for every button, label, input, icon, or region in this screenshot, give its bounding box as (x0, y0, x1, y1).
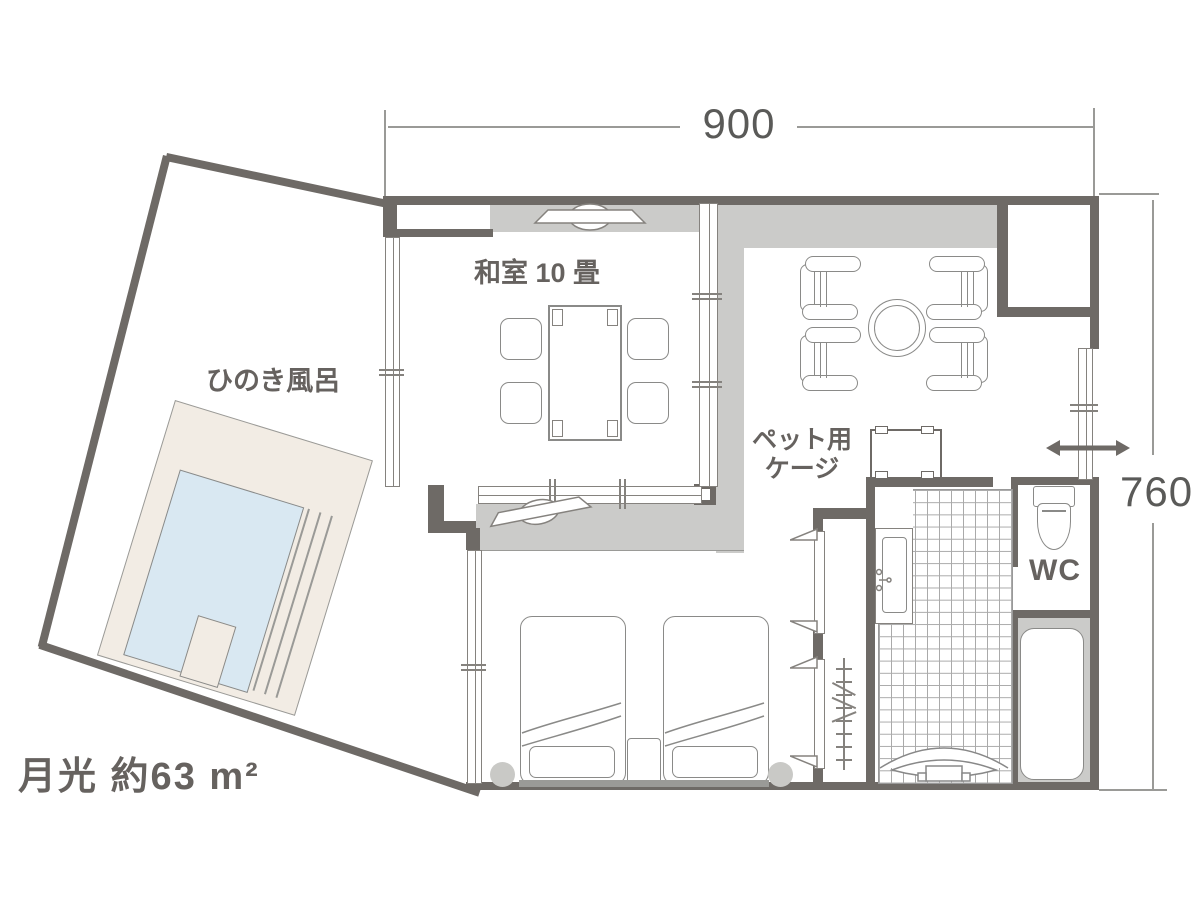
bedside-lamp (490, 762, 515, 787)
door-tick (692, 298, 722, 300)
room-title: 月光 約63 m² (18, 745, 260, 800)
cage-corner-tab (875, 471, 888, 479)
door-tick (1070, 410, 1098, 412)
dimension-width: 900 (680, 100, 798, 148)
door-tick (692, 293, 722, 295)
door-tick (619, 479, 621, 509)
living-alcove-floor (744, 204, 998, 248)
floor-cushion (627, 318, 669, 360)
round-table-inner (874, 305, 920, 351)
chair-arm (805, 256, 861, 272)
armchair (924, 327, 988, 393)
rod-tick (836, 759, 852, 761)
rod-tick (836, 681, 852, 683)
chair-arm (926, 375, 982, 391)
hinoki-bath-deck (97, 400, 373, 716)
panel-flag (790, 755, 818, 768)
door-tick (692, 386, 722, 388)
rod-tick (836, 720, 852, 722)
label-pet-cage: ペット用 ケージ (748, 426, 856, 484)
faucet-icon (874, 567, 892, 593)
label-washitsu: 和室 10 畳 (474, 251, 600, 290)
chair-arm (805, 327, 861, 343)
label-pet-cage-line1: ペット用 (752, 426, 852, 454)
wall-alcove-bottom (383, 229, 493, 237)
dim-line-right-upper (1152, 200, 1154, 455)
rod-tick (836, 707, 852, 709)
wall-right-lower (1090, 477, 1099, 790)
label-wc: WC (1029, 554, 1081, 588)
rod-tick (836, 746, 852, 748)
wall-closet-bottom (997, 307, 1099, 317)
nightstand (627, 738, 661, 785)
wall-angled-topleft (165, 153, 389, 208)
rod-tick (836, 694, 852, 696)
floor-cushion (627, 382, 669, 424)
chair-arm (926, 304, 982, 320)
low-table (548, 305, 622, 441)
table-leg (552, 420, 563, 437)
entrance-sliding-door (1078, 348, 1093, 480)
washbasin-counter (875, 528, 913, 624)
closet-panel (814, 531, 825, 634)
closet-panel (814, 659, 825, 769)
cage-corner-tab (921, 426, 934, 434)
window-tick (461, 664, 486, 666)
door-tick (1070, 404, 1098, 406)
dim-ext-right-top (1099, 193, 1159, 195)
window-tick (461, 669, 486, 671)
window-tick (379, 374, 404, 376)
label-hinoki-bath: ひのき風呂 (206, 359, 340, 398)
bed (520, 616, 626, 785)
wall-entry-left (866, 477, 875, 790)
bed (663, 616, 769, 785)
door-tick (692, 381, 722, 383)
dim-ext-right-bottom (1099, 789, 1167, 791)
floor-cushion (500, 382, 542, 424)
toilet-bowl (1037, 503, 1071, 550)
wall-wc-bath-divider (1011, 610, 1090, 618)
rod-tick (836, 733, 852, 735)
label-pet-cage-line2: ケージ (765, 455, 840, 483)
chair-arm (929, 256, 985, 272)
window-tick (379, 369, 404, 371)
table-leg (552, 309, 563, 326)
entrance-step-stone (878, 722, 1011, 784)
wall-top (383, 196, 1099, 205)
panel-flag (790, 656, 818, 669)
chair-arm (802, 304, 858, 320)
window-bedroom-west (467, 550, 482, 784)
panel-flag (790, 528, 818, 541)
sliding-door-washitsu-east (699, 203, 718, 487)
toilet-seat-line (1042, 510, 1066, 512)
wall-bedroom-window-cap (466, 528, 480, 550)
bathtub (1020, 628, 1084, 780)
corridor-floor-vertical (716, 203, 744, 553)
dim-ext-top-left (384, 110, 386, 196)
dim-line-top-right (797, 126, 1094, 128)
door-tick (624, 479, 626, 509)
wall-closet-left (997, 196, 1008, 317)
pillow (672, 746, 758, 778)
wall-right-upper (1090, 196, 1099, 349)
armchair (800, 256, 864, 322)
dim-line-top-left (388, 126, 680, 128)
chair-arm (802, 375, 858, 391)
headboard (519, 780, 769, 787)
chair-arm (929, 327, 985, 343)
dim-line-right-lower (1152, 523, 1154, 789)
dimension-height: 760 (1120, 468, 1192, 516)
dim-ext-top-right (1093, 108, 1095, 196)
floor-plan: 900 760 和室 10 畳 ひのき風呂 ペット用 ケージ WC 月光 約63… (0, 0, 1200, 900)
tv-icon (528, 200, 650, 234)
cage-corner-tab (875, 426, 888, 434)
panel-flag (790, 620, 818, 633)
rod-tick (836, 668, 852, 670)
pillow (529, 746, 615, 778)
table-leg (607, 420, 618, 437)
window-washitsu-west (385, 237, 400, 487)
armchair (924, 256, 988, 322)
table-leg (607, 309, 618, 326)
cage-corner-tab (921, 471, 934, 479)
hanger-rod (843, 658, 845, 770)
armchair (800, 327, 864, 393)
floor-cushion (500, 318, 542, 360)
entrance-direction-arrow (1046, 436, 1130, 460)
